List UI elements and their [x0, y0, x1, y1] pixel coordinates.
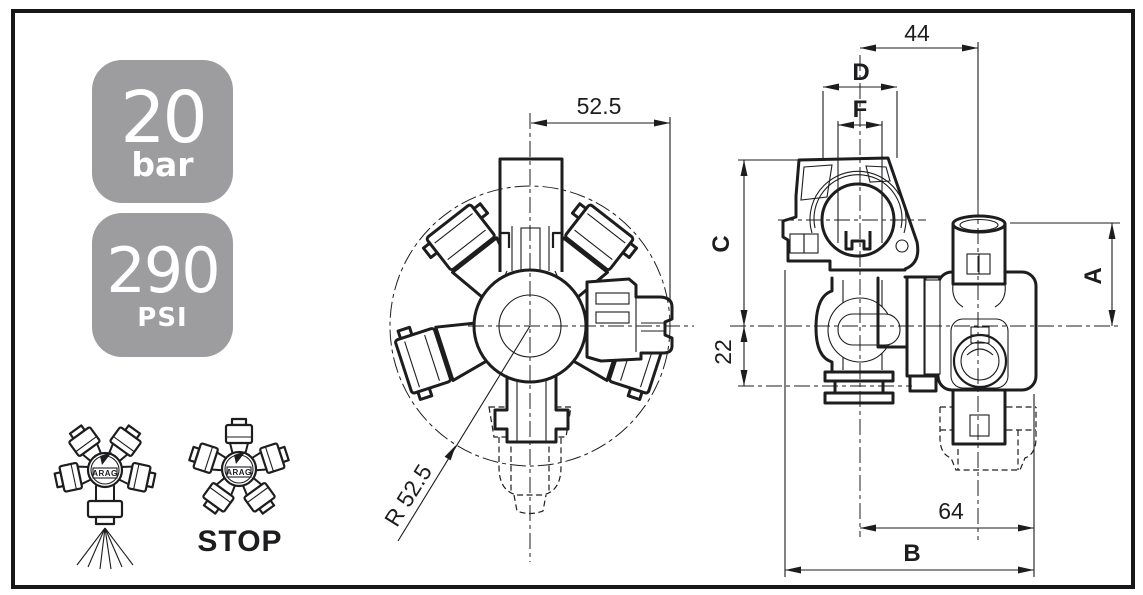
legend-icon-spraying-turret: ARAG — [38, 398, 178, 585]
dim-22: 22 — [710, 326, 748, 386]
dim-C-label: C — [708, 235, 735, 252]
spray-lines — [77, 528, 133, 569]
arag-logo-text: ARAG — [92, 469, 118, 478]
side-valve-connector — [587, 279, 672, 361]
dim-64-label: 64 — [938, 498, 964, 524]
pressure-badge-bar: 20 bar — [92, 60, 233, 203]
pressure-unit-psi: PSI — [137, 305, 187, 331]
front-view-drawing: 52.5 R 52.5 — [345, 75, 700, 580]
stop-label: STOP — [197, 525, 282, 558]
dim-C: C — [708, 160, 800, 326]
bottom-outlet — [953, 390, 1005, 444]
dim-64: 64 — [860, 394, 1034, 577]
mounting-plate — [905, 277, 940, 391]
pressure-value-bar: 20 — [120, 82, 204, 153]
catalog-drawing-page: 20 bar 290 PSI — [0, 0, 1143, 595]
side-view-drawing: 44 D F C 22 — [705, 18, 1135, 585]
active-nozzle-down — [88, 486, 122, 524]
dim-44-label: 44 — [904, 20, 930, 46]
pressure-badge-psi: 290 PSI — [92, 213, 233, 357]
legend-icon-stop-turret: ARAG STOP — [172, 398, 307, 563]
turret-center: ARAG — [88, 452, 122, 487]
dim-D-label: D — [852, 59, 869, 86]
arag-logo-text: ARAG — [226, 468, 252, 477]
swivel-assembly — [816, 278, 906, 370]
nozzle-arm — [226, 419, 252, 455]
hose-fork — [825, 372, 893, 403]
dim-52-5-label: 52.5 — [577, 93, 622, 119]
pressure-value-psi: 290 — [106, 240, 218, 302]
dim-A-label: A — [1080, 267, 1107, 284]
dim-radius-label: R 52.5 — [379, 460, 437, 531]
dim-B-label: B — [903, 540, 920, 567]
pressure-unit-bar: bar — [131, 148, 193, 181]
turret-center: ARAG — [222, 451, 256, 486]
pipe-clamp — [783, 158, 918, 270]
dim-22-label: 22 — [710, 339, 736, 365]
